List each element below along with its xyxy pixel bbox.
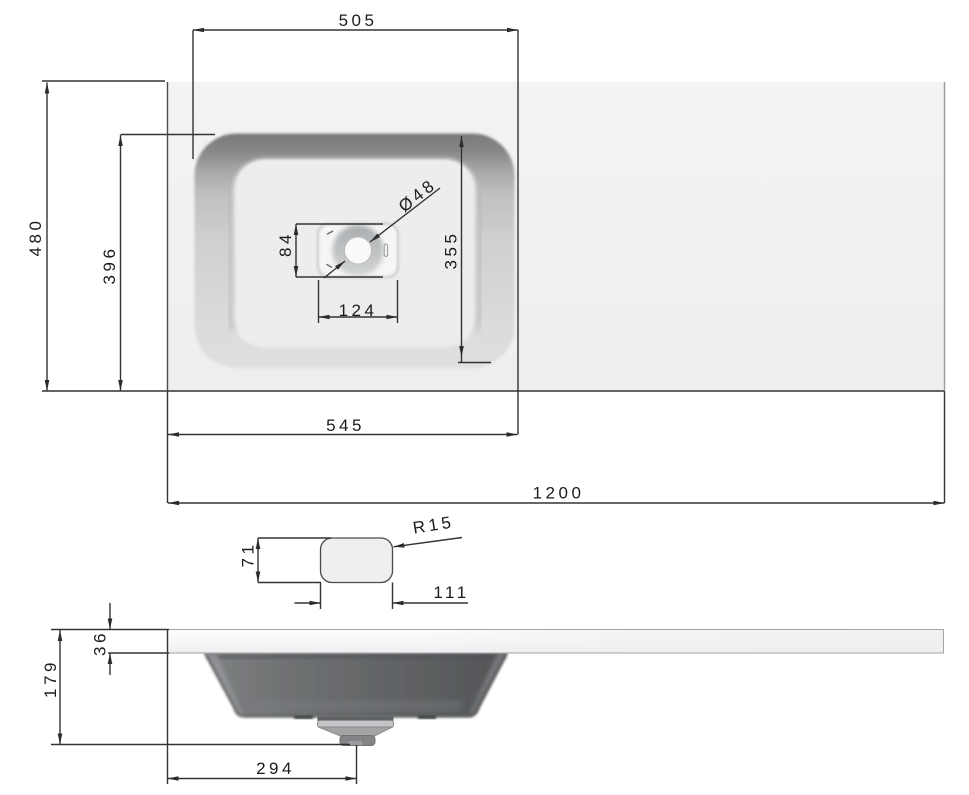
svg-text:R15: R15 <box>412 512 456 537</box>
svg-text:396: 396 <box>100 246 119 285</box>
svg-text:71: 71 <box>239 542 258 568</box>
svg-text:545: 545 <box>326 416 365 435</box>
svg-text:480: 480 <box>26 218 45 257</box>
svg-text:124: 124 <box>339 301 378 320</box>
svg-text:36: 36 <box>91 630 110 656</box>
svg-text:111: 111 <box>433 583 469 602</box>
svg-text:1200: 1200 <box>533 484 585 503</box>
svg-text:505: 505 <box>339 11 378 30</box>
svg-text:294: 294 <box>256 759 295 778</box>
svg-text:179: 179 <box>41 659 60 698</box>
svg-text:355: 355 <box>442 231 461 270</box>
svg-text:84: 84 <box>276 231 295 257</box>
